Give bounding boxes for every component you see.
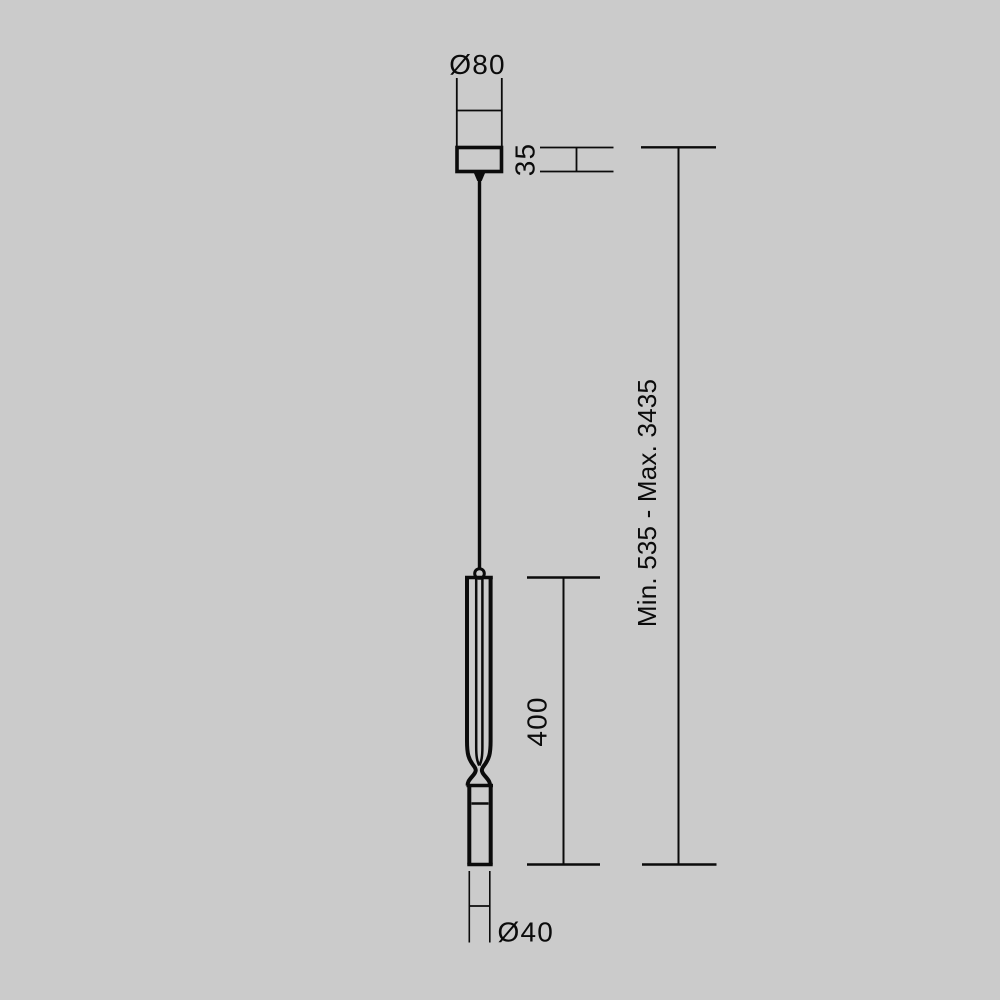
ceiling-canopy	[457, 148, 502, 172]
tube-wall-left	[467, 578, 476, 786]
dimension-label-body-diameter: Ø40	[498, 917, 555, 948]
dimension-label-canopy-diameter: Ø80	[449, 49, 506, 80]
dimension-body-diameter: Ø40	[469, 871, 554, 948]
dimension-body-length: 400	[522, 578, 601, 865]
drawing-page: Ø80 35 Min. 535 - Max. 3435 400	[0, 0, 1000, 1000]
tube-inner-line-left	[476, 579, 479, 766]
dimension-label-canopy-height: 35	[510, 143, 541, 177]
dimension-suspension-range: Min. 535 - Max. 3435	[632, 147, 717, 864]
dimension-canopy-height: 35	[510, 143, 614, 177]
lamp-fixture	[457, 148, 502, 865]
dimension-canopy-diameter: Ø80	[449, 49, 506, 146]
tube-inner-line-right	[479, 579, 482, 766]
pendant-lamp-dimension-drawing: Ø80 35 Min. 535 - Max. 3435 400	[0, 0, 1000, 1000]
dimension-label-suspension-range: Min. 535 - Max. 3435	[632, 379, 662, 627]
dimension-label-body-length: 400	[522, 696, 553, 746]
